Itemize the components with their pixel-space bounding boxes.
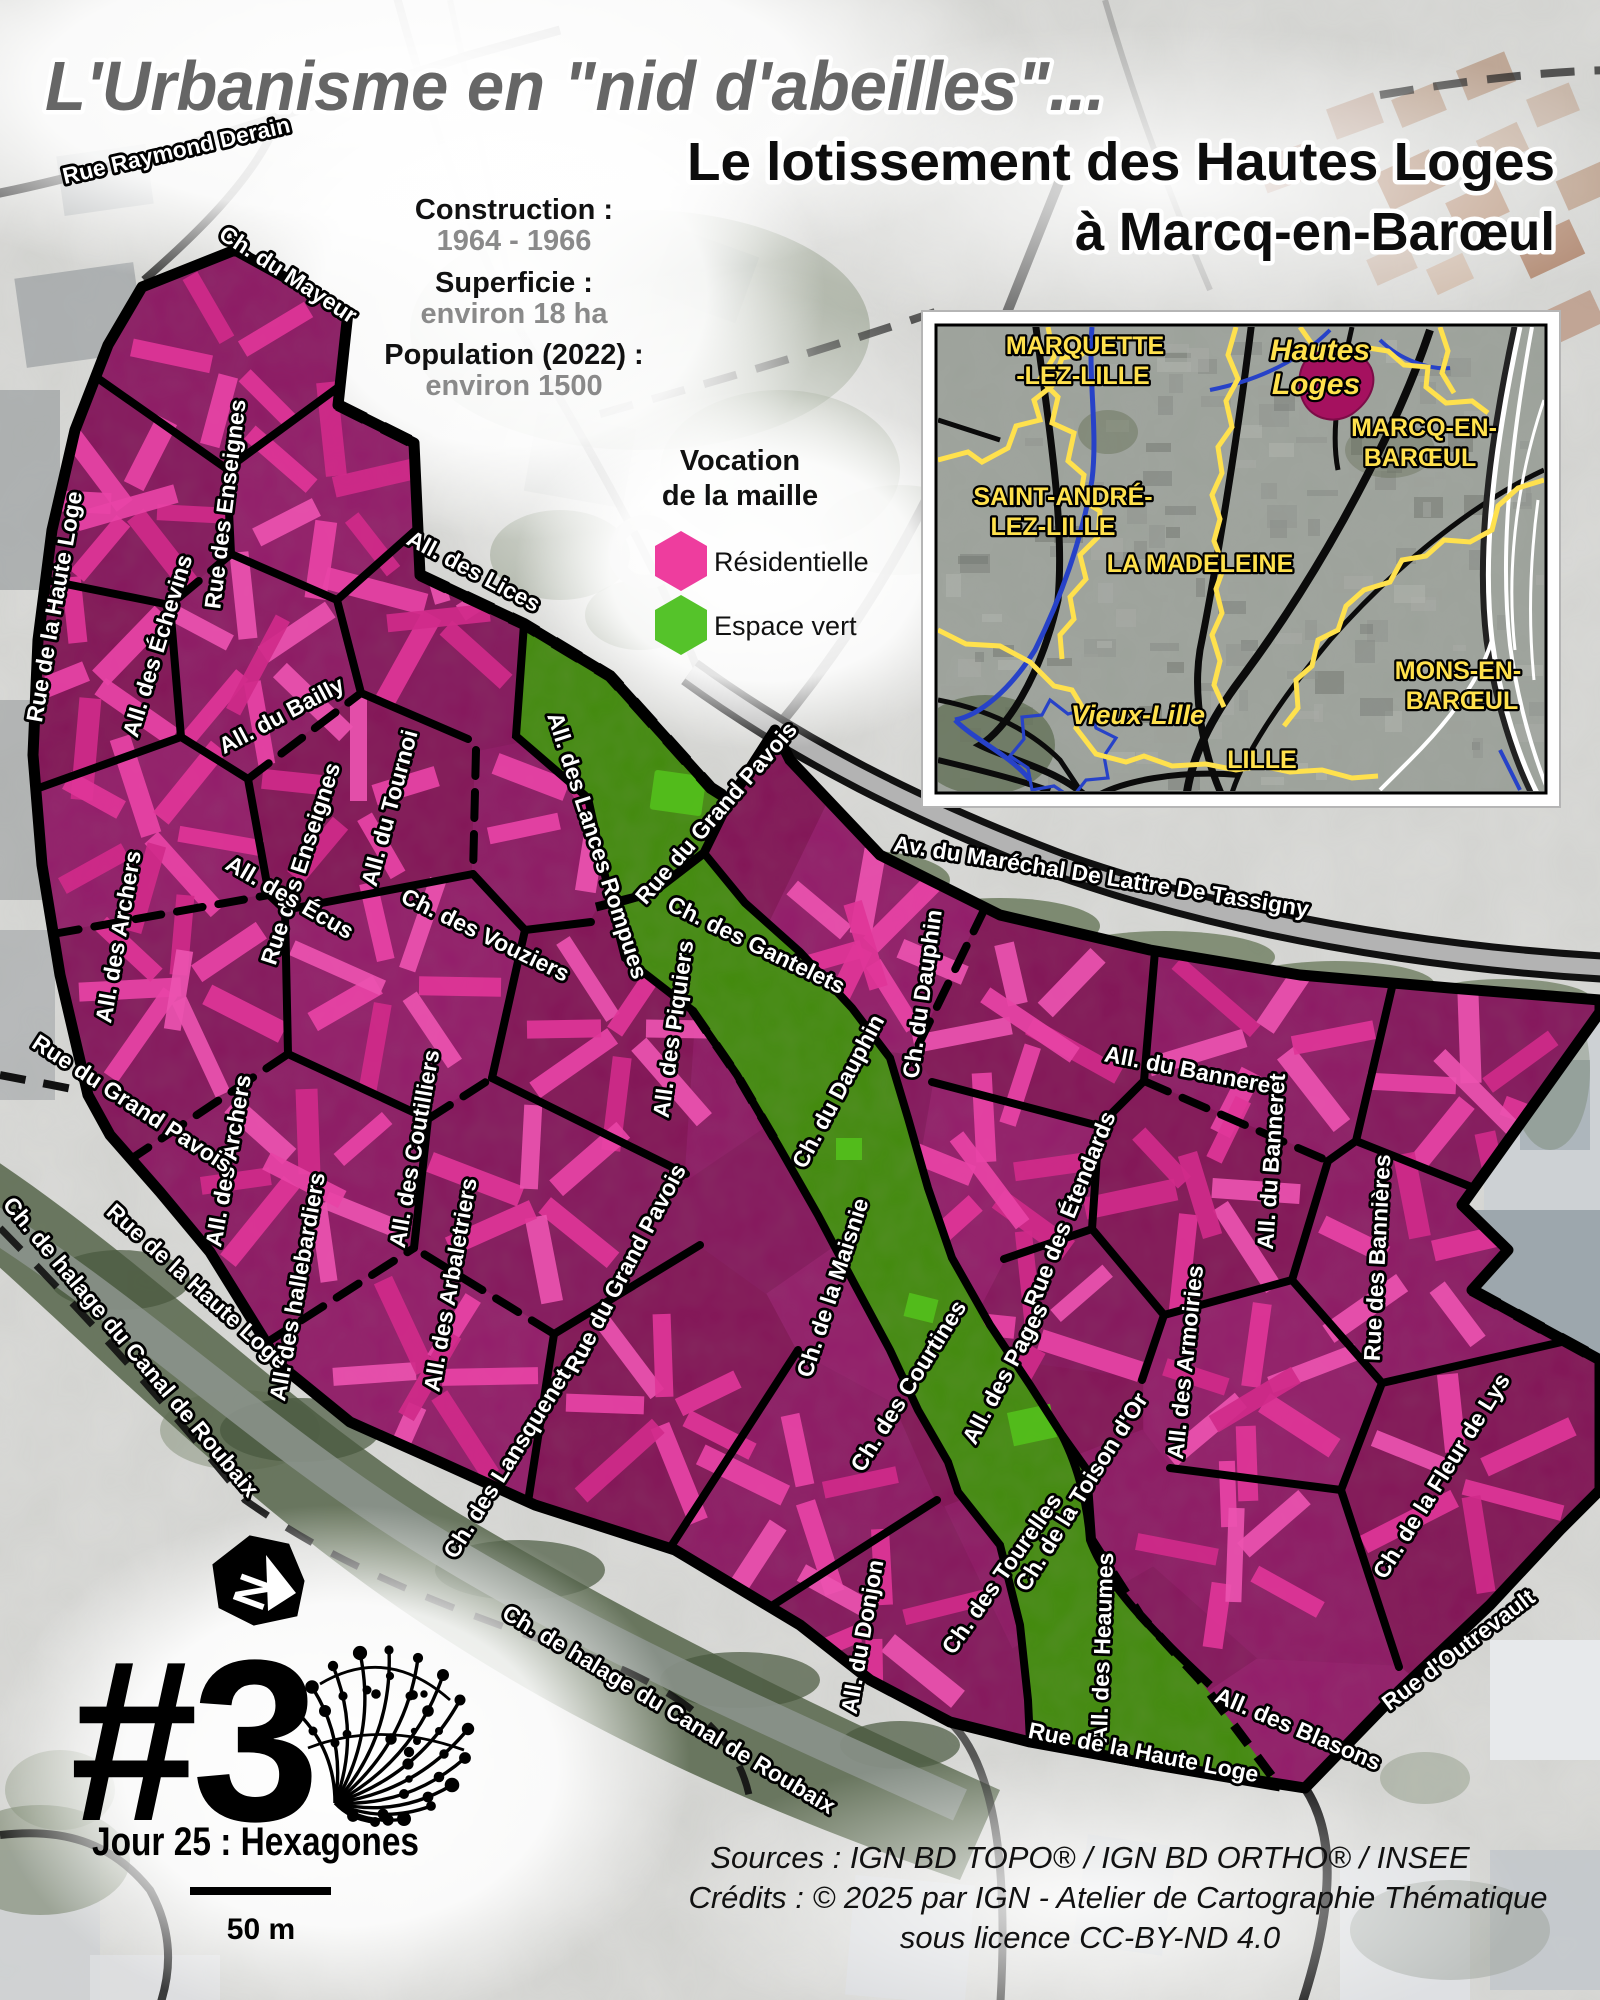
svg-text:Crédits : © 2025 par IGN - Ate: Crédits : © 2025 par IGN - Atelier de Ca… bbox=[688, 1880, 1547, 1915]
svg-text:LILLE: LILLE bbox=[1227, 746, 1296, 774]
svg-text:de la maille: de la maille bbox=[662, 480, 818, 512]
svg-text:Sources : IGN BD TOPO® / IGN B: Sources : IGN BD TOPO® / IGN BD ORTHO® /… bbox=[710, 1840, 1470, 1875]
svg-text:Jour 25 : Hexagones: Jour 25 : Hexagones bbox=[92, 1820, 419, 1864]
svg-text:Résidentielle: Résidentielle bbox=[714, 547, 869, 577]
svg-text:environ 1500: environ 1500 bbox=[425, 370, 602, 402]
svg-text:L'Urbanisme en "nid d'abeilles: L'Urbanisme en "nid d'abeilles"... bbox=[45, 47, 1105, 125]
svg-text:LEZ-LILLE: LEZ-LILLE bbox=[991, 513, 1116, 541]
svg-text:environ 18 ha: environ 18 ha bbox=[421, 298, 609, 330]
svg-text:Superficie :: Superficie : bbox=[435, 267, 593, 299]
svg-text:Le lotissement des Hautes Loge: Le lotissement des Hautes Loges bbox=[687, 132, 1555, 192]
svg-text:Vocation: Vocation bbox=[680, 445, 800, 477]
svg-text:MARQUETTE: MARQUETTE bbox=[1006, 332, 1164, 360]
svg-text:1964 - 1966: 1964 - 1966 bbox=[437, 225, 592, 257]
svg-text:Hautes: Hautes bbox=[1270, 334, 1370, 367]
svg-text:MARCQ-EN-: MARCQ-EN- bbox=[1351, 414, 1497, 442]
svg-text:Population (2022) :: Population (2022) : bbox=[384, 339, 643, 371]
svg-text:MONS-EN-: MONS-EN- bbox=[1395, 657, 1521, 685]
svg-text:SAINT-ANDRÉ-: SAINT-ANDRÉ- bbox=[973, 482, 1152, 511]
svg-text:50 m: 50 m bbox=[227, 1913, 295, 1946]
svg-text:-LEZ-LILLE: -LEZ-LILLE bbox=[1016, 362, 1149, 390]
svg-text:LA MADELEINE: LA MADELEINE bbox=[1107, 550, 1294, 578]
svg-text:sous licence CC-BY-ND 4.0: sous licence CC-BY-ND 4.0 bbox=[900, 1920, 1280, 1955]
svg-text:Vieux-Lille: Vieux-Lille bbox=[1071, 700, 1205, 730]
svg-text:à Marcq-en-Barœul: à Marcq-en-Barœul bbox=[1075, 202, 1555, 262]
svg-text:Espace vert: Espace vert bbox=[714, 611, 857, 641]
svg-text:Loges: Loges bbox=[1272, 368, 1360, 401]
svg-text:Construction :: Construction : bbox=[415, 194, 613, 226]
svg-text:BARŒUL: BARŒUL bbox=[1364, 444, 1477, 472]
svg-text:BARŒUL: BARŒUL bbox=[1406, 687, 1519, 715]
